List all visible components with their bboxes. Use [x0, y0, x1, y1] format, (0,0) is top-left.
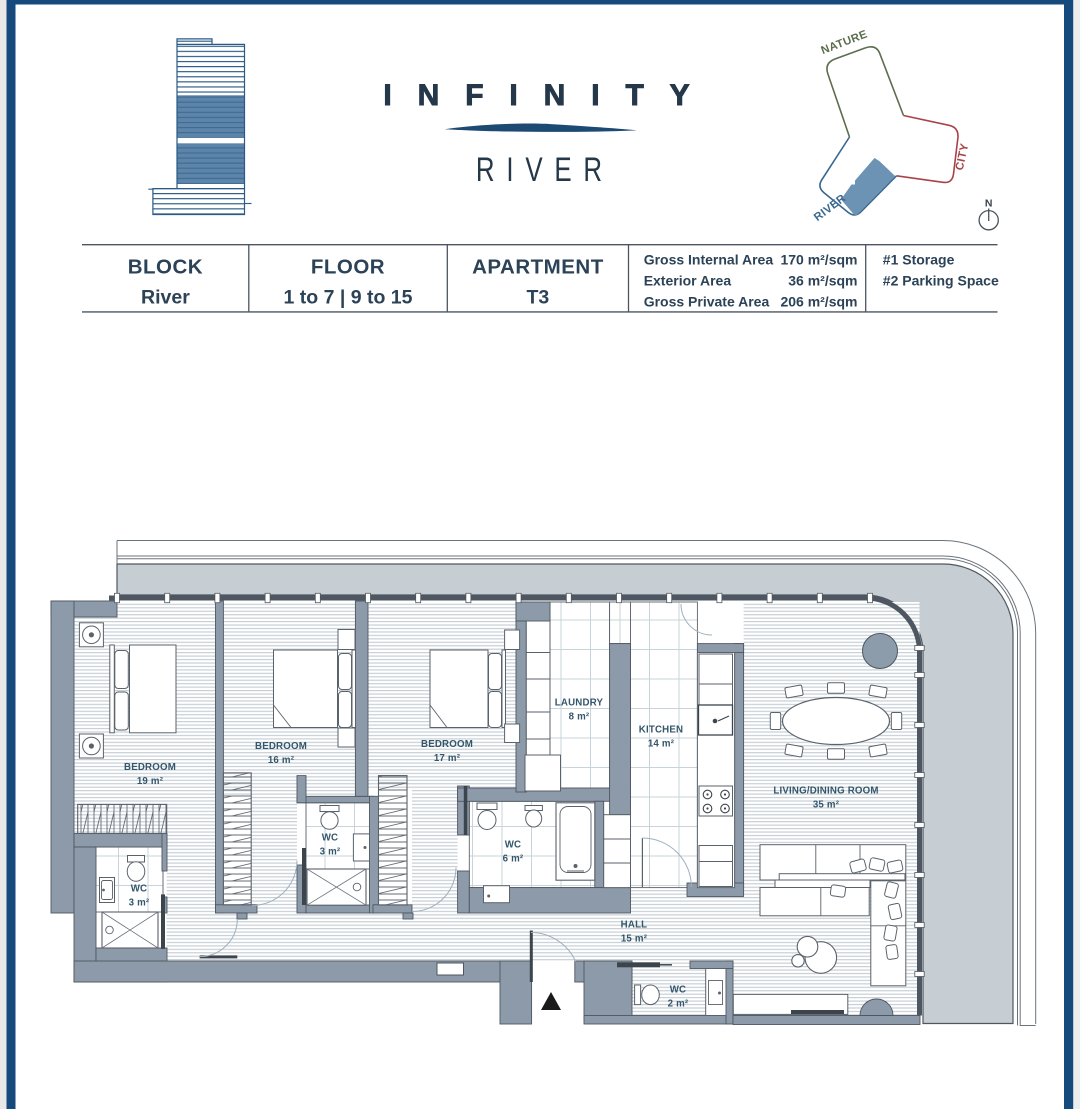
svg-text:APARTMENT: APARTMENT	[472, 256, 604, 279]
svg-text:WC: WC	[322, 833, 339, 844]
svg-text:River: River	[141, 287, 190, 309]
svg-text:Gross Private Area: Gross Private Area	[644, 294, 770, 310]
svg-text:BLOCK: BLOCK	[128, 256, 203, 279]
svg-text:BEDROOM: BEDROOM	[421, 739, 473, 750]
svg-text:3 m²: 3 m²	[320, 847, 341, 858]
svg-text:2 m²: 2 m²	[668, 999, 689, 1010]
svg-text:8 m²: 8 m²	[569, 712, 590, 723]
svg-text:14 m²: 14 m²	[648, 739, 675, 750]
svg-text:17 m²: 17 m²	[434, 753, 461, 764]
svg-text:36 m²/sqm: 36 m²/sqm	[788, 273, 857, 289]
svg-text:HALL: HALL	[621, 920, 648, 931]
svg-text:BEDROOM: BEDROOM	[255, 741, 307, 752]
svg-text:1 to 7 | 9 to 15: 1 to 7 | 9 to 15	[284, 287, 413, 309]
svg-text:NATURE: NATURE	[820, 28, 870, 57]
svg-text:WC: WC	[131, 884, 148, 895]
svg-text:15 m²: 15 m²	[621, 934, 648, 945]
svg-text:Exterior Area: Exterior Area	[644, 273, 732, 289]
svg-text:3 m²: 3 m²	[129, 898, 150, 909]
svg-text:WC: WC	[670, 985, 687, 996]
svg-text:19 m²: 19 m²	[137, 776, 164, 787]
svg-text:RIVER: RIVER	[476, 150, 614, 188]
svg-text:#1 Storage: #1 Storage	[883, 252, 955, 268]
svg-text:170 m²/sqm: 170 m²/sqm	[780, 252, 857, 268]
svg-text:LAUNDRY: LAUNDRY	[555, 698, 604, 709]
svg-text:KITCHEN: KITCHEN	[639, 725, 683, 736]
svg-text:BEDROOM: BEDROOM	[124, 762, 176, 773]
svg-text:16 m²: 16 m²	[268, 755, 295, 766]
svg-text:35 m²: 35 m²	[813, 800, 840, 811]
svg-text:N: N	[985, 198, 993, 210]
svg-text:WC: WC	[505, 840, 522, 851]
svg-text:#2 Parking Space: #2 Parking Space	[883, 273, 999, 289]
svg-text:LIVING/DINING ROOM: LIVING/DINING ROOM	[773, 786, 878, 797]
svg-text:FLOOR: FLOOR	[311, 256, 385, 279]
svg-text:Gross Internal Area: Gross Internal Area	[644, 252, 774, 268]
svg-text:206 m²/sqm: 206 m²/sqm	[780, 294, 857, 310]
svg-text:T3: T3	[527, 287, 550, 309]
svg-text:6 m²: 6 m²	[503, 854, 524, 865]
svg-text:INFINITY: INFINITY	[383, 79, 715, 112]
